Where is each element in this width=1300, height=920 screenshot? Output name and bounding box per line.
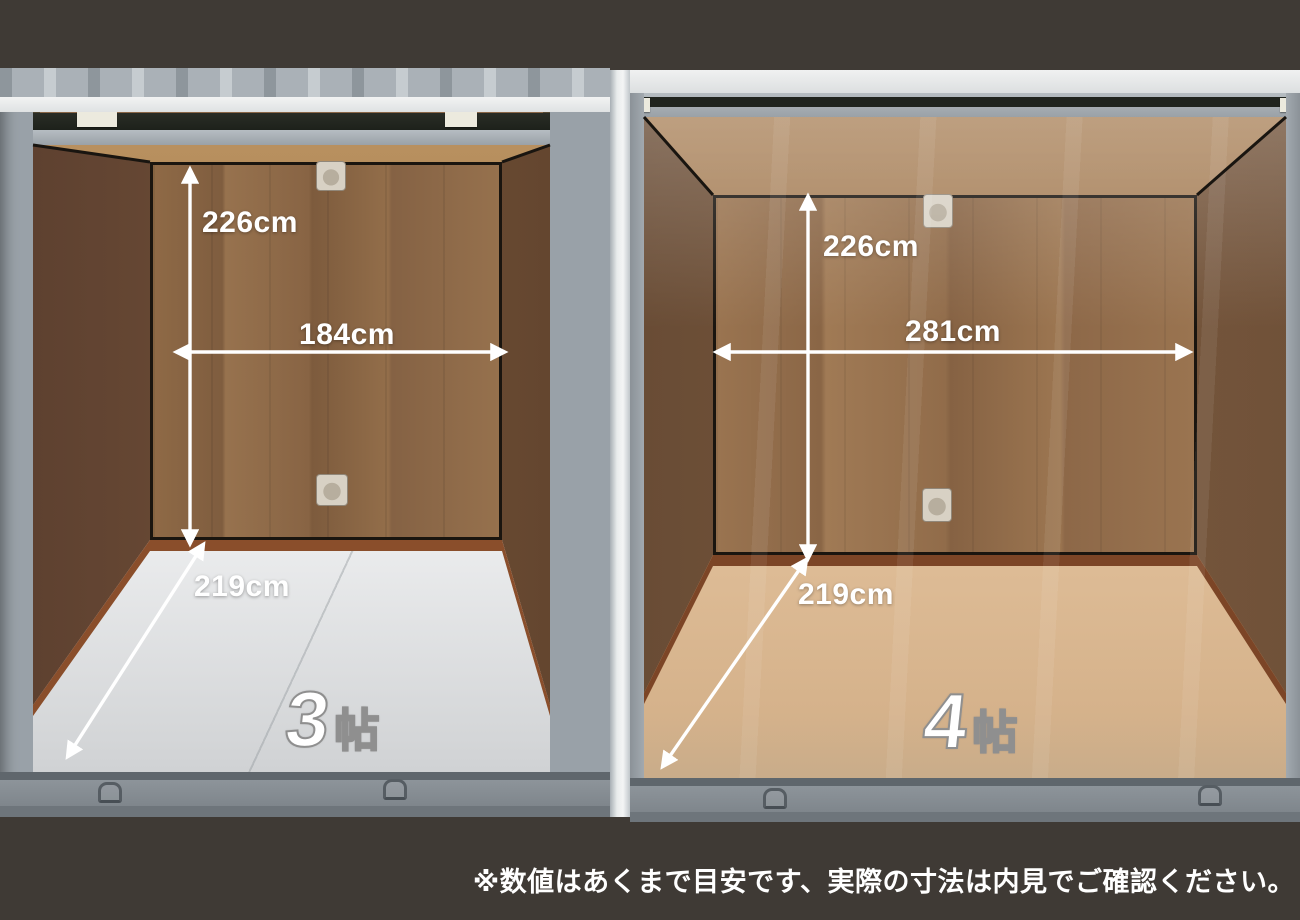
entry-sill xyxy=(0,780,610,806)
tie-down-ring-icon xyxy=(763,788,787,809)
door-hinge-icon xyxy=(445,112,477,127)
air-vent-icon xyxy=(316,161,346,191)
door-brush-seal xyxy=(644,97,1286,107)
container-top-rail xyxy=(630,70,1300,93)
tie-down-ring-icon xyxy=(383,779,407,800)
entry-sill-shadow xyxy=(630,778,1300,786)
depth-dimension-label: 219cm xyxy=(798,580,894,610)
door-header-bar xyxy=(33,130,550,145)
unit-size-number: 4 xyxy=(920,686,971,756)
width-dimension-label: 281cm xyxy=(880,317,1026,347)
frame-column-right xyxy=(1286,93,1300,822)
depth-dimension-label: 219cm xyxy=(194,572,290,602)
unit-photo-3jo: 226cm 184cm 219cm 3 帖 xyxy=(0,68,610,817)
unit-size-unit: 帖 xyxy=(972,713,1017,757)
unit-size-label: 4 帖 xyxy=(924,686,1017,756)
frame-column-left xyxy=(630,93,644,822)
entry-sill-shadow xyxy=(0,772,610,780)
height-dimension-label: 226cm xyxy=(202,208,298,238)
height-dimension-label: 226cm xyxy=(823,232,919,262)
door-hinge-icon xyxy=(77,112,117,127)
unit-photo-4jo: 226cm 281cm 219cm 4 帖 xyxy=(630,70,1300,822)
tie-down-ring-icon xyxy=(98,782,122,803)
tie-down-ring-icon xyxy=(1198,785,1222,806)
photo-divider xyxy=(610,70,630,817)
entry-sill-edge xyxy=(630,812,1300,822)
width-dimension-label: 184cm xyxy=(280,320,414,350)
container-roof-corrugation xyxy=(0,68,610,97)
unit-size-number: 3 xyxy=(282,684,333,754)
container-top-rail xyxy=(0,97,610,112)
air-vent-icon xyxy=(316,474,348,506)
unit-size-unit: 帖 xyxy=(334,711,379,755)
disclaimer-text: ※数値はあくまで目安です、実際の寸法は内見でご確認ください。 xyxy=(0,860,1295,899)
storage-unit-size-comparison: 226cm 184cm 219cm 3 帖 xyxy=(0,0,1300,920)
entry-sill-edge xyxy=(0,806,610,817)
unit-size-label: 3 帖 xyxy=(286,684,379,754)
